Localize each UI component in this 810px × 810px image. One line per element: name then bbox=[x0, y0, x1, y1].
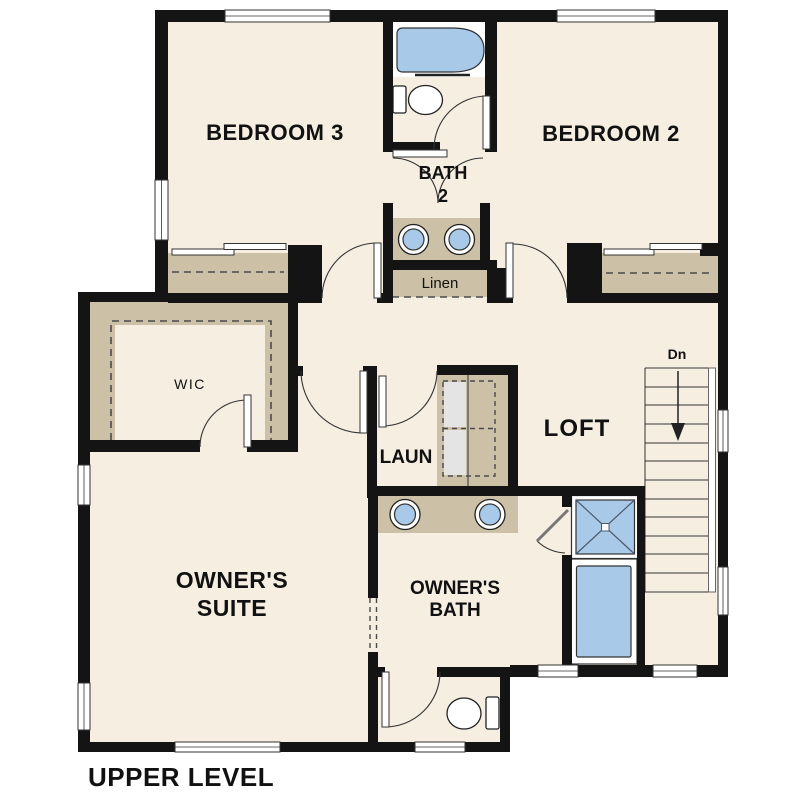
wall-bedroom2-closet-south bbox=[602, 293, 728, 303]
room-label-wic: WIC bbox=[174, 376, 206, 392]
sink-basin bbox=[403, 229, 424, 250]
window bbox=[718, 410, 728, 452]
bypass-door-panel bbox=[650, 244, 702, 250]
wall-loft-bath-divider bbox=[367, 486, 645, 496]
door-leaf-bedroom3 bbox=[374, 243, 381, 298]
room-label-bedroom3: BEDROOM 3 bbox=[206, 120, 344, 145]
window bbox=[538, 665, 578, 677]
wall-exterior-left-upper bbox=[155, 10, 168, 302]
wall-vanity-right bbox=[480, 203, 490, 270]
room-label-bath2-line1: BATH bbox=[419, 163, 468, 183]
window bbox=[175, 742, 280, 752]
wall-column-bedroom3-door bbox=[288, 245, 322, 303]
room-label-bedroom2: BEDROOM 2 bbox=[542, 121, 680, 146]
wall-shower-stub bbox=[562, 496, 572, 507]
wall-laundry-top bbox=[437, 365, 518, 375]
shower bbox=[572, 496, 639, 559]
window bbox=[225, 10, 330, 22]
wall-toilet-room-top bbox=[437, 667, 510, 677]
tub-basin bbox=[577, 566, 632, 657]
wall-suite-bath-upper bbox=[368, 496, 378, 598]
room-label-bath2-line2: 2 bbox=[438, 186, 448, 206]
room-label-linen: Linen bbox=[422, 275, 459, 292]
wall-laundry-right bbox=[508, 365, 518, 486]
bathtub bbox=[397, 28, 484, 72]
wall-toilet-room-right bbox=[500, 667, 510, 752]
wall-stair-divider bbox=[637, 487, 645, 665]
window bbox=[557, 10, 655, 22]
bypass-door-panel bbox=[224, 244, 286, 250]
wall-bath-tub-divider bbox=[562, 555, 572, 665]
toilet-tank bbox=[486, 697, 499, 729]
window bbox=[653, 665, 697, 677]
door-leaf-wic bbox=[244, 395, 251, 447]
washer bbox=[444, 382, 466, 427]
stair-handrail bbox=[709, 368, 716, 592]
wall-wic-bottom-left bbox=[90, 440, 200, 452]
door-leaf-bedroom2 bbox=[506, 243, 513, 298]
stairs-down-label: Dn bbox=[668, 346, 687, 362]
toilet-bowl bbox=[409, 86, 443, 115]
window bbox=[78, 465, 90, 505]
wall-bath2-left bbox=[383, 22, 393, 152]
soaking-tub bbox=[570, 559, 637, 664]
sink-basin bbox=[480, 504, 501, 525]
level-title: UPPER LEVEL bbox=[88, 762, 274, 792]
room-label-owners-suite-line2: SUITE bbox=[197, 595, 267, 621]
bedroom2-closet bbox=[602, 253, 718, 295]
shower-drain bbox=[602, 524, 610, 532]
wall-column-bedroom2-closet bbox=[567, 243, 602, 303]
wall-stub-suite-door bbox=[296, 366, 303, 376]
floor-plan-page: BEDROOM 3 BEDROOM 2 BATH 2 Linen WIC LAU… bbox=[0, 0, 810, 810]
door-leaf-owners-suite bbox=[360, 371, 367, 433]
wall-step-top bbox=[78, 292, 168, 302]
room-label-loft: LOFT bbox=[544, 415, 611, 442]
floor-plan-drawing: BEDROOM 3 BEDROOM 2 BATH 2 Linen WIC LAU… bbox=[0, 0, 810, 810]
bedroom3-closet bbox=[168, 253, 288, 295]
wall-corridor-laundry bbox=[367, 366, 377, 498]
room-label-owners-bath-line1: OWNER'S bbox=[410, 578, 500, 599]
window bbox=[155, 180, 168, 240]
room-label-owners-bath-line2: BATH bbox=[429, 600, 480, 621]
window bbox=[78, 683, 90, 730]
wall-suite-bath-lower bbox=[368, 652, 378, 745]
door-leaf-laundry bbox=[379, 376, 386, 427]
door-leaf-bath2 bbox=[483, 96, 490, 149]
toilet-bowl bbox=[447, 698, 481, 729]
sink-basin bbox=[395, 504, 416, 525]
room-label-owners-suite-line1: OWNER'S bbox=[176, 567, 288, 593]
wall-wic-bottom-right bbox=[247, 440, 298, 452]
bypass-door-panel bbox=[604, 249, 654, 255]
window bbox=[718, 567, 728, 615]
wall-closet-stub bbox=[700, 243, 718, 256]
door-leaf-toilet-room bbox=[382, 672, 389, 727]
wall-linen-top bbox=[383, 260, 497, 270]
wall-vanity-left bbox=[383, 203, 393, 293]
toilet-tank bbox=[393, 86, 406, 113]
window bbox=[415, 742, 465, 752]
door-leaf-open-bath2 bbox=[393, 150, 447, 157]
sink-basin bbox=[449, 229, 470, 250]
room-label-laundry: LAUN bbox=[380, 447, 433, 468]
dryer bbox=[444, 430, 466, 475]
